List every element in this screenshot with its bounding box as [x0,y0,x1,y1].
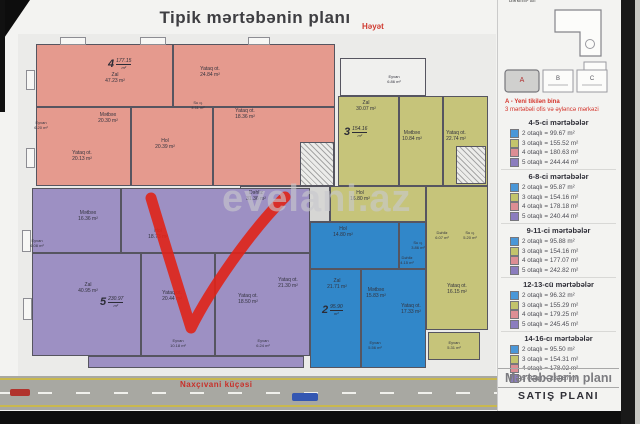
photo-edge-left [0,0,5,112]
legend-item-label: 3 otaqlı = 154.31 m² [522,356,578,363]
legend-section: 12-13-cü mərtəbələr2 otaqlı = 96.32 m²3 … [501,277,616,329]
balcony-tick [26,70,35,90]
legend-color-chip [510,202,519,211]
room-area: 40.95 m² [58,288,118,294]
room-area: 5.20 m² [452,235,488,240]
legend-item: 2 otaqlı = 96.32 m² [501,291,616,301]
wall-line [214,252,216,356]
room-label: Mətbəx16.36 m² [58,210,118,223]
wall-line [140,252,142,356]
legend-color-chip [510,212,519,221]
legend-color-chip [510,148,519,157]
legend-item-label: 2 otaqlı = 95.88 m² [522,238,575,245]
room-area: 18.50 m² [218,299,278,305]
road-lane-dashes [0,392,500,394]
balcony-tick [60,37,86,45]
room-area: 30.07 m² [336,106,396,112]
legend-item-label: 5 otaqlı = 244.44 m² [522,159,578,166]
room-area: 17.33 m² [385,309,437,315]
area-unit: m² [330,311,343,316]
room-label: Yataq ot.24.84 m² [180,66,240,79]
balcony-tick [140,37,166,45]
legend-item: 4 otaqlı = 178.18 m² [501,202,616,212]
site-note-2: 3 mərtəbəli ofis və əyləncə mərkəzi [501,106,616,114]
legend-color-chip [510,301,519,310]
legend-color-chip [510,355,519,364]
site-block-a-label: A [519,77,524,84]
legend-color-chip [510,247,519,256]
apartment-marker: 295.90m² [322,304,343,316]
stairwell-hatch [456,146,486,184]
room-label: Su q.5.20 m² [452,230,488,240]
room-label: Mətbəx15.83 m² [350,287,402,300]
room-label: Hol20.39 m² [135,138,195,151]
room-area: 21.30 m² [258,283,318,289]
legend-section-title: 4-5-ci mərtəbələr [501,118,616,127]
legend-item-label: 5 otaqlı = 242.82 m² [522,267,578,274]
plan-footer-title: Mərtəbələrin planı [498,368,619,385]
street-name-label: Naxçıvani küçəsi [180,380,252,389]
legend-color-chip [510,158,519,167]
legend-item: 5 otaqlı = 240.44 m² [501,212,616,222]
apartment-marker: 3154.16m² [344,126,367,138]
legend-item: 3 otaqlı = 154.31 m² [501,355,616,365]
room-area: 31.36 m² [226,196,286,202]
apartment-room-count: 4 [108,58,114,70]
area-unit: m² [352,133,367,138]
apartment-total-area: 177.15 [116,58,131,65]
legend-section: 4-5-ci mərtəbələr2 otaqlı = 99.67 m²3 ot… [501,116,616,167]
legend-item: 3 otaqlı = 154.16 m² [501,247,616,257]
board-frame-bottom [0,411,640,424]
room-label: Eyvan6.20 m² [26,120,56,130]
room-label: Hol18.73 m² [128,228,188,241]
legend-color-chip [510,193,519,202]
apartment-room-count: 5 [100,296,106,308]
site-note-1: A - Yeni tikilən bina [501,98,616,106]
legend-item: 2 otaqlı = 95.88 m² [501,237,616,247]
legend-item-label: 4 otaqlı = 179.25 m² [522,311,578,318]
legend-section-title: 9-11-ci mərtəbələr [501,226,616,235]
legend-color-chip [510,291,519,300]
room-label: Eyvan5.56 m² [352,340,398,350]
legend-item-label: 5 otaqlı = 245.45 m² [522,321,578,328]
room-area: 4.15 m² [390,260,424,265]
room-label: Su q.3.86 m² [402,240,434,250]
board-frame-right [621,0,635,424]
legend-item: 4 otaqlı = 179.25 m² [501,310,616,320]
sales-plan-board: Tipik mərtəbənin planı Həyət Zal47.23 m²… [0,0,640,424]
wall-line [212,106,214,186]
legend-item-label: 3 otaqlı = 154.16 m² [522,194,578,201]
apartment-total-area: 95.90 [330,304,343,311]
room-area: 20.30 m² [78,118,138,124]
legend-item-label: 2 otaqlı = 95.87 m² [522,184,575,191]
legend-section-title: 14-16-cı mərtəbələr [501,334,616,343]
legend-item-label: 2 otaqlı = 95.50 m² [522,346,575,353]
room-label: Yataq ot.16.15 m² [427,283,487,296]
wall-line [172,44,174,108]
sidebar-footer: Mərtəbələrin planı SATIŞ PLANI [498,368,619,402]
room-area: 20.44 m² [142,296,202,302]
room-label: Zal40.95 m² [58,282,118,295]
legend-item-label: 2 otaqlı = 99.67 m² [522,130,575,137]
room-label: Dəhliz31.36 m² [226,190,286,203]
legend-item: 3 otaqlı = 155.29 m² [501,301,616,311]
room-area: 6.20 m² [26,125,56,130]
apartment-room-count: 2 [322,304,328,316]
apartment-total-area: 230.97 [108,296,123,303]
site-block-c-label: C [589,76,594,82]
room-label: Yataq ot.20.44 m² [142,290,202,303]
legend-color-chip [510,310,519,319]
room-area: 5.31 m² [430,345,478,350]
road-yellow-line [0,405,500,407]
apartment-room-count: 3 [344,126,350,138]
legend-item: 3 otaqlı = 155.52 m² [501,139,616,149]
room-label: Yataq ot.18.36 m² [215,108,275,121]
room-label: Hol14.80 m² [318,226,368,239]
apartment-total-area: 154.16 [352,126,367,133]
legend-item: 5 otaqlı = 242.82 m² [501,266,616,276]
room-area: 10.18 m² [155,343,201,348]
background-wall [635,0,640,424]
room-area: 16.15 m² [427,289,487,295]
legend-section: 6-8-ci mərtəbələr2 otaqlı = 95.87 m²3 ot… [501,169,616,221]
room-area: 24.84 m² [180,72,240,78]
legend-sidebar: Bərkimli- arı A B C A - Yeni tikilən bin… [497,0,619,412]
legend-item: 4 otaqlı = 180.63 m² [501,148,616,158]
legend-item: 5 otaqlı = 245.45 m² [501,320,616,330]
legend-section-title: 12-13-cü mərtəbələr [501,280,616,289]
room-label: Yataq ot.18.50 m² [218,293,278,306]
room-area: 6.24 m² [242,343,284,348]
wall-line [310,268,426,270]
legend-item-label: 2 otaqlı = 96.32 m² [522,292,575,299]
legend-color-chip [510,237,519,246]
street-band: Naxçıvani küçəsi [0,376,500,410]
room-label: Dəhliz4.15 m² [390,255,424,265]
legend-item: 2 otaqlı = 95.50 m² [501,345,616,355]
room-label: Eyvan6.08 m² [22,238,52,248]
room-area: 18.36 m² [215,114,275,120]
room-label: Eyvan6.86 m² [372,74,416,84]
legend-color-chip [510,320,519,329]
room-area: 6.86 m² [372,79,416,84]
room-label: Yataq ot.22.74 m² [426,130,486,143]
wall-line [120,188,122,252]
legend-item-label: 4 otaqlı = 177.07 m² [522,257,578,264]
legend-color-chip [510,345,519,354]
room-area: 15.83 m² [350,293,402,299]
room-label: Yataq ot.21.30 m² [258,277,318,290]
stairwell-hatch [300,142,334,186]
legend-item: 2 otaqlı = 95.87 m² [501,183,616,193]
room-area: 6.08 m² [22,243,52,248]
room-label: Hol16.80 m² [330,190,390,203]
balcony-tick [248,37,270,45]
room-area: 16.80 m² [330,196,390,202]
room-area: 18.73 m² [128,234,188,240]
cutoff-street-label: Bərkimli- arı [501,0,616,4]
room-area: 3.86 m² [402,245,434,250]
legend-item: 2 otaqlı = 99.67 m² [501,129,616,139]
room-label: Zal47.23 m² [85,72,145,85]
legend-item-label: 4 otaqlı = 178.18 m² [522,203,578,210]
legend-color-chip [510,266,519,275]
room-label: Eyvan5.31 m² [430,340,478,350]
room-label: Mətbəx20.30 m² [78,112,138,125]
red-car-icon [10,389,30,396]
room-label: Eyvan6.24 m² [242,338,284,348]
legend-section: 9-11-ci mərtəbələr2 otaqlı = 95.88 m²3 o… [501,223,616,275]
room-label: Yataq ot.20.13 m² [52,150,112,163]
room-label: Eyvan10.18 m² [155,338,201,348]
legend-color-chip [510,256,519,265]
site-block-b-label: B [555,76,559,82]
room-label: Zal30.07 m² [336,100,396,113]
room-label: Su q.4.11 m² [178,100,218,110]
room-area: 20.39 m² [135,144,195,150]
legend-item-label: 5 otaqlı = 240.44 m² [522,213,578,220]
room-area: 47.23 m² [85,78,145,84]
area-unit: m² [116,65,131,70]
blue-bus-icon [292,393,318,401]
legend-section-title: 6-8-ci mərtəbələr [501,172,616,181]
room-area: 22.74 m² [426,136,486,142]
legend-item-label: 3 otaqlı = 155.52 m² [522,140,578,147]
legend-color-chip [510,129,519,138]
legend-item-label: 4 otaqlı = 180.63 m² [522,149,578,156]
legend-color-chip [510,183,519,192]
room-area: 14.80 m² [318,232,368,238]
site-plan-diagram: A B C [502,6,616,96]
sales-plan-label: SATIŞ PLANI [498,387,619,402]
room-area: 16.36 m² [58,216,118,222]
room-area: 20.13 m² [52,156,112,162]
legend-item-label: 3 otaqlı = 155.29 m² [522,302,578,309]
apartment-zone-purple-eyvan-strip [88,356,304,368]
room-area: 5.56 m² [352,345,398,350]
room-label: Yataq ot.17.33 m² [385,303,437,316]
room-area: 4.11 m² [178,105,218,110]
wall-line [32,252,310,254]
legend-color-chip [510,139,519,148]
balcony-tick [23,298,32,320]
apartment-marker: 5230.97m² [100,296,123,308]
area-unit: m² [108,303,123,308]
legend-item-label: 3 otaqlı = 154.16 m² [522,248,578,255]
floor-legend: 4-5-ci mərtəbələr2 otaqlı = 99.67 m²3 ot… [501,116,616,383]
legend-item: 3 otaqlı = 154.16 m² [501,193,616,203]
legend-item: 5 otaqlı = 244.44 m² [501,158,616,168]
legend-item: 4 otaqlı = 177.07 m² [501,256,616,266]
balcony-tick [26,148,35,168]
apartment-marker: 4177.15m² [108,58,131,70]
